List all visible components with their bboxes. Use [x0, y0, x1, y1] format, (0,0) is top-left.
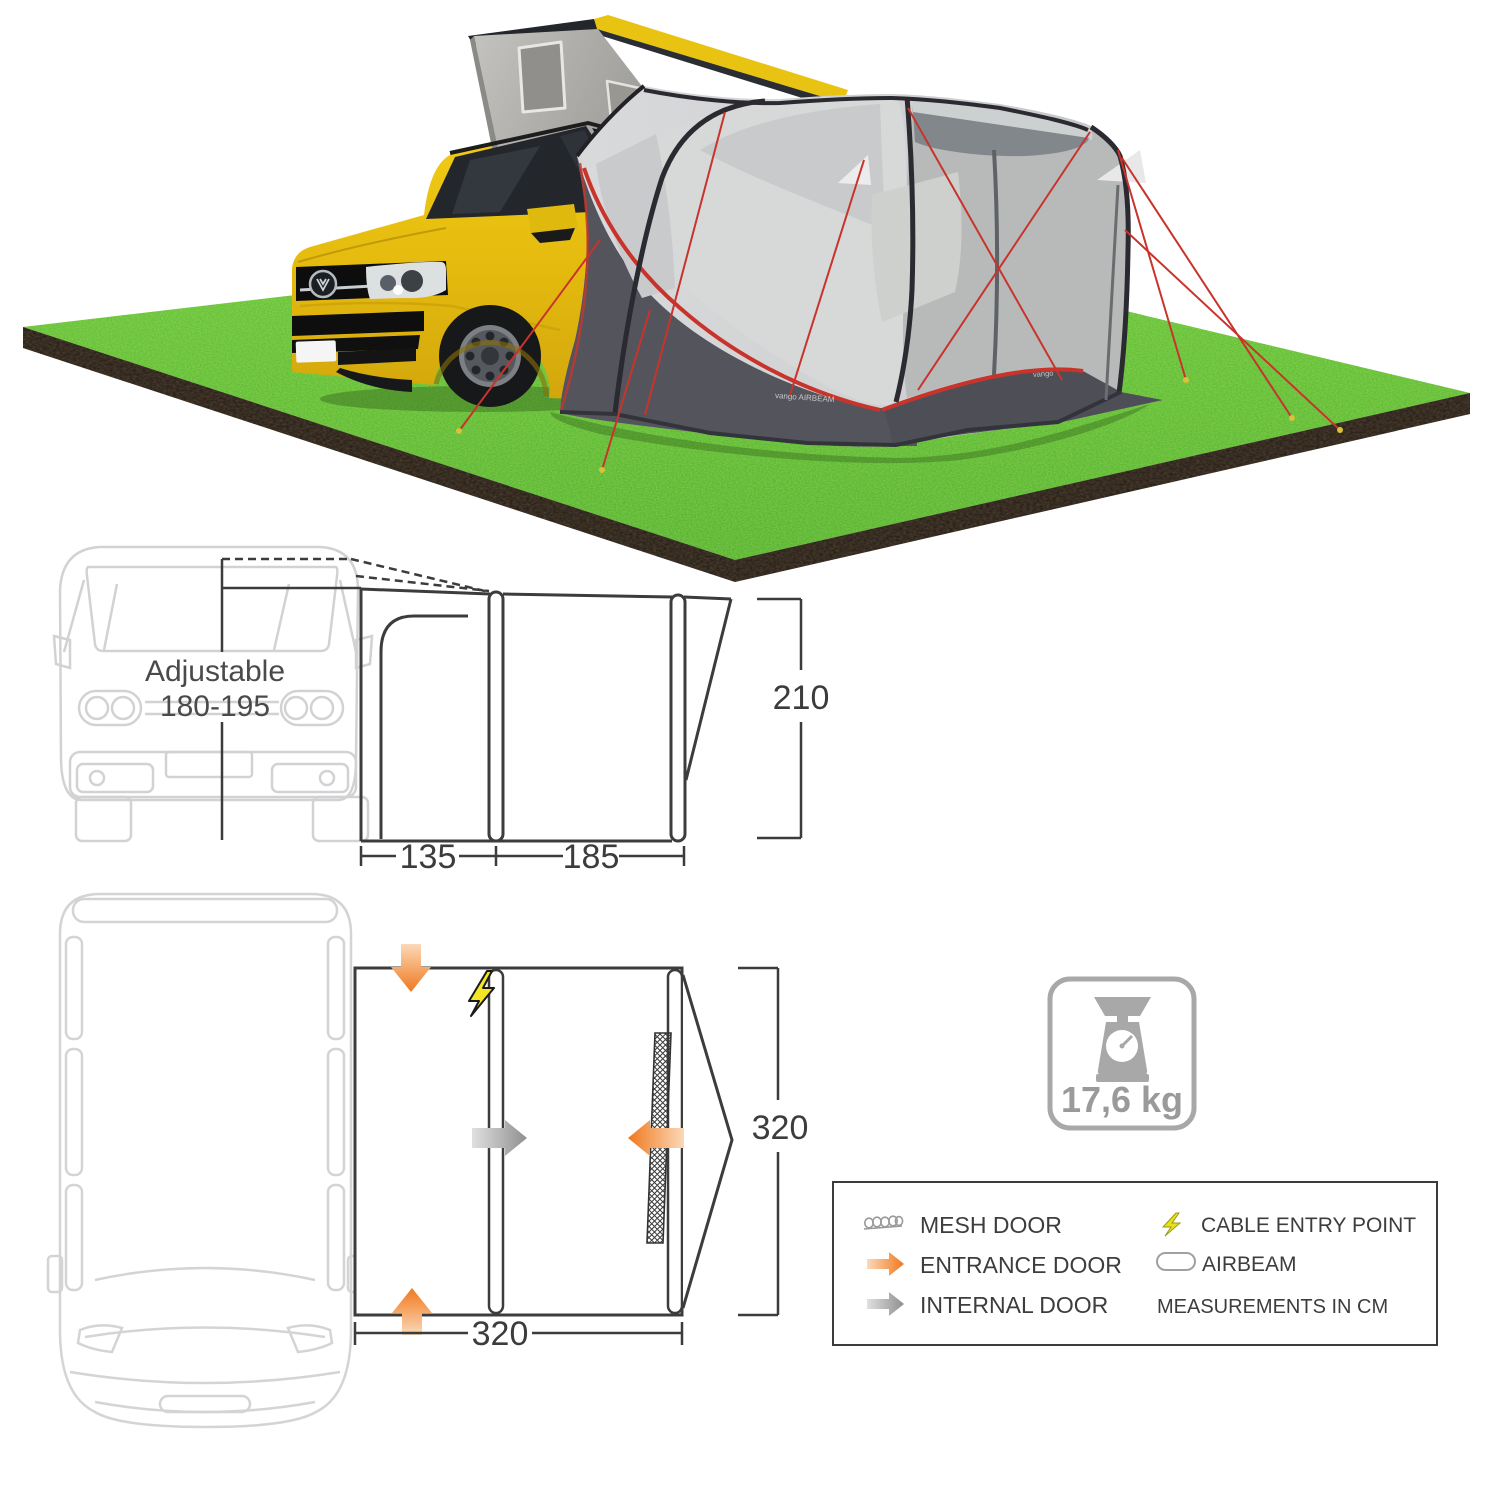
svg-text:CABLE ENTRY POINT: CABLE ENTRY POINT	[1201, 1214, 1416, 1237]
svg-text:210: 210	[773, 679, 830, 717]
svg-text:320: 320	[752, 1109, 809, 1147]
svg-text:17,6 kg: 17,6 kg	[1061, 1079, 1183, 1120]
svg-text:INTERNAL DOOR: INTERNAL DOOR	[920, 1292, 1108, 1318]
svg-text:MESH DOOR: MESH DOOR	[920, 1212, 1062, 1238]
svg-text:AIRBEAM: AIRBEAM	[1202, 1253, 1297, 1276]
svg-text:180-195: 180-195	[160, 690, 270, 723]
svg-text:ENTRANCE DOOR: ENTRANCE DOOR	[920, 1252, 1122, 1278]
svg-text:185: 185	[563, 838, 620, 876]
svg-text:135: 135	[400, 838, 457, 876]
svg-text:MEASUREMENTS IN CM: MEASUREMENTS IN CM	[1157, 1296, 1388, 1318]
svg-text:Adjustable: Adjustable	[145, 655, 285, 688]
svg-text:320: 320	[472, 1315, 529, 1353]
svg-text:vango: vango	[1033, 369, 1054, 379]
